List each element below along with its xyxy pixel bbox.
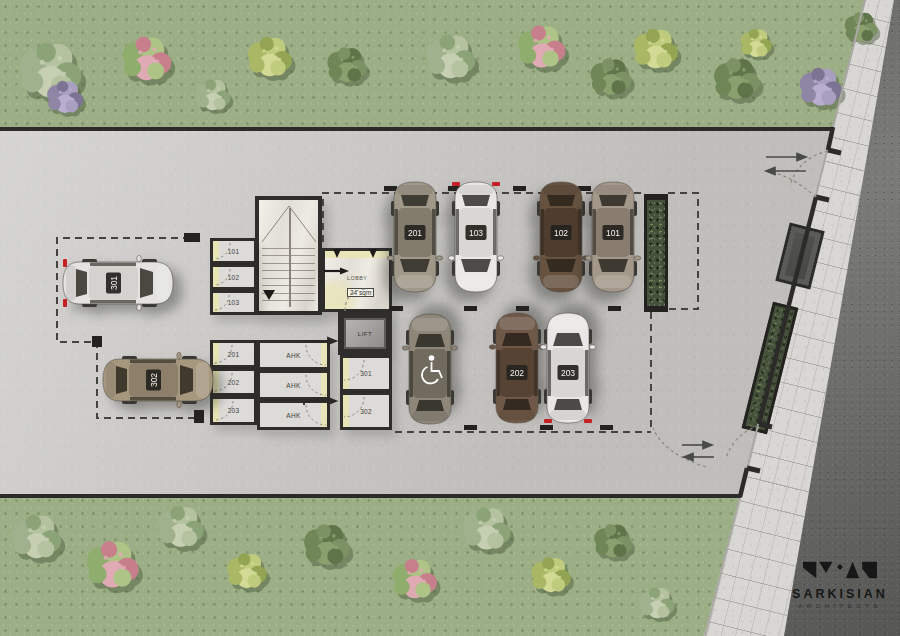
car-spot-302: 302 — [100, 350, 216, 410]
svg-text:101: 101 — [606, 228, 620, 238]
brand-name: SARKISIAN — [788, 587, 892, 601]
car-spot-103: 103 — [446, 179, 506, 295]
svg-text:102: 102 — [554, 228, 568, 238]
car-spot-301: 301 — [60, 253, 176, 313]
svg-text:201: 201 — [408, 228, 422, 238]
svg-text:301: 301 — [109, 276, 119, 290]
brand-logo-mark — [803, 556, 877, 584]
cars-layer: 301302201103102101202203 — [0, 0, 900, 636]
site-plan-rendering: LOBBY 24 sqm LIFT 101102103201202203AHKA… — [0, 0, 900, 636]
brand-logo: SARKISIAN ARCHITECTS — [788, 556, 892, 609]
car-spot-102: 102 — [531, 179, 591, 295]
svg-text:203: 203 — [561, 368, 575, 378]
car-spot-101: 101 — [583, 179, 643, 295]
brand-subtitle: ARCHITECTS — [788, 603, 892, 609]
car-accessible-spot — [400, 311, 460, 427]
car-spot-201: 201 — [385, 179, 445, 295]
car-spot-203: 203 — [538, 310, 598, 426]
svg-text:103: 103 — [469, 228, 483, 238]
svg-text:302: 302 — [149, 373, 159, 387]
svg-text:202: 202 — [510, 368, 524, 378]
